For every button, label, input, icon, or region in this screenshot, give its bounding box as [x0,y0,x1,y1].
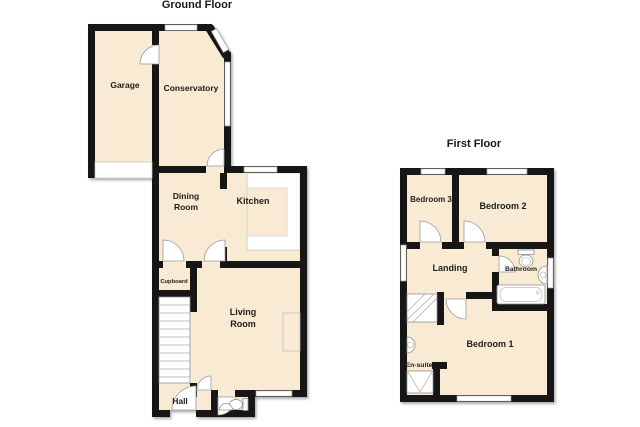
cupboard-label: Cupboard [160,279,188,285]
kitchen-window [244,167,277,172]
landing-label: Landing [433,263,468,273]
garage-room [95,31,152,163]
shower-icon [407,371,433,393]
bedroom3-label: Bedroom 3 [410,195,452,204]
conservatory-room [159,31,224,166]
bathroom-label: Bathroom [505,266,537,273]
conservatory-door-gap [206,166,224,173]
bedroom1-label: Bedroom 1 [466,339,513,349]
hall-label: Hall [172,396,188,406]
floorplan-canvas: Ground Floor [0,0,640,427]
ground-floor-plan: Garage Conservatory Dining Room Kitchen … [88,24,307,417]
conservatory-top-window [165,25,197,31]
living-room-label-line2: Room [230,319,256,329]
first-floor-plan: Bedroom 3 Bedroom 2 Landing Bathroom En-… [400,168,554,402]
landing-stairs-icon [407,294,437,322]
bedroom3-window [421,169,445,174]
living-room-label-line1: Living [230,307,257,317]
landing-window [401,245,406,281]
bedroom2-label: Bedroom 2 [479,201,526,211]
bedroom1-window [457,396,511,401]
bedroom2-window [487,169,527,174]
first-floor-title: First Floor [447,138,502,150]
bathroom-window [548,258,553,288]
garage-label: Garage [110,80,140,90]
stairs-icon [159,297,190,383]
ground-floor-title: Ground Floor [162,0,233,11]
dining-room-label-line2: Room [174,202,199,212]
bathroom-toilet-icon [518,250,534,267]
dining-room-label-line1: Dining [173,191,199,201]
ensuite-label: En-suite [406,362,433,369]
kitchen-label: Kitchen [236,196,269,206]
living-room-window [256,391,292,396]
conservatory-side-window [225,62,230,126]
conservatory-label: Conservatory [164,83,219,93]
garage-door-icon [95,162,152,178]
floorplan-page: Ground Floor [0,0,640,427]
kitchen-counter-icon [247,173,300,250]
bathtub-icon [497,285,545,304]
